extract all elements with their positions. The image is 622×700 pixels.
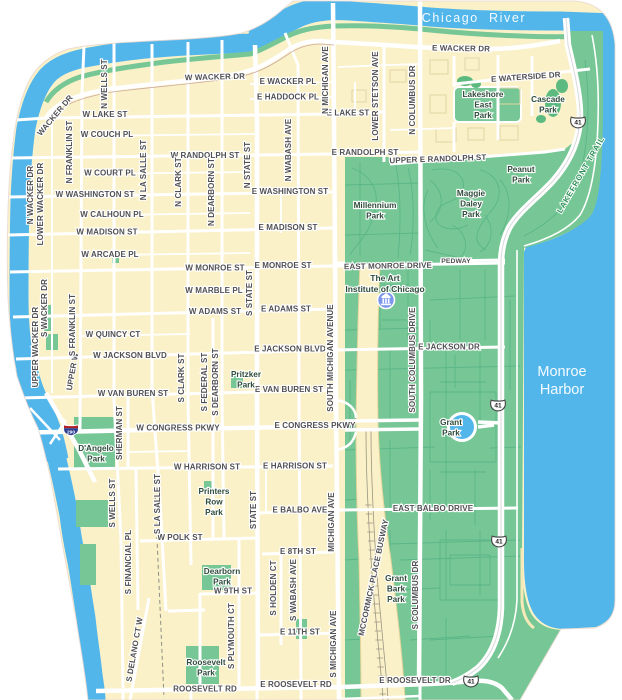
svg-text:MICHIGAN AVE: MICHIGAN AVE [327,492,336,552]
svg-text:E WACKER PL: E WACKER PL [260,77,317,86]
svg-text:Park: Park [205,508,223,517]
svg-text:W COURT PL: W COURT PL [84,169,136,178]
svg-text:E ADAMS ST: E ADAMS ST [261,305,311,314]
svg-text:S STATE ST: S STATE ST [245,270,254,316]
svg-text:41: 41 [495,538,503,545]
svg-text:W ARCADE PL: W ARCADE PL [81,250,138,259]
svg-text:S FEDERAL ST: S FEDERAL ST [200,353,209,412]
svg-text:East: East [474,101,492,110]
svg-text:W LAKE ST: W LAKE ST [83,110,128,119]
svg-text:Park: Park [87,455,105,464]
svg-text:EAST MONROE DRIVE: EAST MONROE DRIVE [344,261,433,272]
svg-text:W 9TH ST: W 9TH ST [214,587,252,596]
svg-text:W VAN BUREN ST: W VAN BUREN ST [98,389,169,398]
svg-text:N FRANKLIN ST: N FRANKLIN ST [65,121,74,184]
svg-text:Park: Park [462,210,480,219]
svg-text:Cascade: Cascade [531,95,565,104]
svg-text:The Art: The Art [370,273,400,283]
svg-text:Institute of Chicago: Institute of Chicago [345,284,424,294]
svg-text:S MICHIGAN AVE: S MICHIGAN AVE [329,610,338,678]
svg-text:Park: Park [512,176,530,185]
svg-text:S FRANKLIN ST: S FRANKLIN ST [68,294,77,356]
svg-text:290: 290 [67,430,75,436]
svg-text:N WELLS ST: N WELLS ST [100,59,109,108]
svg-text:S COLUMBUS DR: S COLUMBUS DR [411,560,420,629]
svg-text:E 11TH ST: E 11TH ST [280,628,320,637]
svg-text:LOWER STETSON AVE: LOWER STETSON AVE [371,51,380,141]
svg-text:W WACKER DR: W WACKER DR [185,72,246,83]
svg-text:ROOSEVELT RD: ROOSEVELT RD [173,685,237,694]
svg-text:Park: Park [197,669,215,678]
svg-text:N CLARK ST: N CLARK ST [174,157,183,206]
svg-text:Park: Park [539,106,557,115]
svg-text:D'Angelo: D'Angelo [78,444,114,453]
svg-text:N COLUMBUS DR: N COLUMBUS DR [408,65,417,134]
svg-text:W WASHINGTON ST: W WASHINGTON ST [56,190,135,199]
svg-text:N DEARBORN ST: N DEARBORN ST [207,158,216,226]
svg-text:E LAKE ST: E LAKE ST [327,109,370,118]
svg-text:N WABASH AVE: N WABASH AVE [284,118,293,181]
svg-text:LOWER WACKER DR: LOWER WACKER DR [36,162,45,245]
svg-text:E HARRISON ST: E HARRISON ST [263,462,327,471]
svg-text:E JACKSON BLVD: E JACKSON BLVD [254,345,326,354]
svg-text:E BALBO AVE: E BALBO AVE [273,506,328,515]
svg-text:E VAN BUREN ST: E VAN BUREN ST [255,385,323,394]
svg-text:W CALHOUN PL: W CALHOUN PL [80,210,143,219]
svg-text:Park: Park [474,111,492,120]
svg-text:UPPER WACKER DR: UPPER WACKER DR [31,307,40,388]
svg-text:SOUTH MICHIGAN AVENUE: SOUTH MICHIGAN AVENUE [326,304,335,412]
svg-text:41: 41 [574,119,582,126]
svg-text:Maggie: Maggie [457,189,486,198]
svg-text:S HOLDEN CT: S HOLDEN CT [269,560,278,615]
svg-text:N STATE ST: N STATE ST [243,142,252,188]
svg-text:41: 41 [467,678,475,685]
svg-text:N WACKER DR: N WACKER DR [26,166,35,225]
svg-text:W CONGRESS PKWY: W CONGRESS PKWY [136,424,220,433]
svg-text:Park: Park [237,381,255,390]
svg-text:Bark: Bark [387,585,406,594]
svg-text:E MADISON ST: E MADISON ST [259,223,318,232]
svg-text:E CONGRESS PKWY: E CONGRESS PKWY [274,421,356,430]
svg-text:N MICHIGAN AVE: N MICHIGAN AVE [321,46,330,114]
svg-text:Grant: Grant [385,574,407,583]
svg-text:W QUINCY CT: W QUINCY CT [86,330,141,339]
svg-text:W POLK ST: W POLK ST [157,533,202,542]
svg-text:Daley: Daley [460,200,482,209]
svg-text:Roosevelt: Roosevelt [186,658,225,667]
svg-text:STATE ST: STATE ST [249,491,258,529]
svg-text:S DEARBORN ST: S DEARBORN ST [211,348,220,416]
svg-text:Park: Park [387,595,405,604]
svg-text:Dearborn: Dearborn [204,567,240,576]
svg-text:S PLYMOUTH CT: S PLYMOUTH CT [227,603,236,669]
svg-text:S FINANCIAL PL: S FINANCIAL PL [124,530,133,594]
svg-text:Park: Park [213,578,231,587]
svg-text:Millennium: Millennium [354,201,397,210]
svg-text:Peanut: Peanut [507,165,535,174]
svg-text:EAST BALBO DRIVE: EAST BALBO DRIVE [393,504,474,513]
svg-text:E JACKSON DR: E JACKSON DR [418,343,480,352]
svg-text:Printers: Printers [199,487,230,496]
svg-text:Row: Row [205,498,223,507]
svg-text:E 8TH ST: E 8TH ST [280,547,316,556]
svg-text:Lakeshore: Lakeshore [463,90,504,99]
svg-text:E HADDOCK PL: E HADDOCK PL [257,93,319,102]
svg-text:W MADISON ST: W MADISON ST [76,228,137,237]
svg-text:W JACKSON BLVD: W JACKSON BLVD [93,351,167,360]
svg-text:S WACKER DR: S WACKER DR [40,279,49,337]
svg-text:E ROOSEVELT DR: E ROOSEVELT DR [379,676,451,685]
svg-text:Park: Park [366,212,384,221]
svg-text:41: 41 [494,402,502,409]
svg-text:E WASHINGTON ST: E WASHINGTON ST [252,187,328,196]
svg-text:PEDWAY: PEDWAY [441,258,471,265]
svg-text:S LA SALLE ST: S LA SALLE ST [153,474,162,534]
svg-text:N LA SALLE ST: N LA SALLE ST [139,140,148,201]
svg-text:Pritzker: Pritzker [231,370,262,379]
svg-text:SHERMAN ST: SHERMAN ST [115,406,124,460]
svg-text:W ADAMS ST: W ADAMS ST [189,307,241,316]
svg-text:S WELLS ST: S WELLS ST [108,478,117,527]
svg-text:W HARRISON ST: W HARRISON ST [174,463,240,472]
svg-text:W MARBLE PL: W MARBLE PL [185,286,243,295]
svg-text:Harbor: Harbor [540,382,584,398]
svg-text:Monroe: Monroe [537,364,586,380]
svg-text:W COUCH PL: W COUCH PL [81,130,134,139]
svg-text:E WACKER DR: E WACKER DR [432,43,490,53]
svg-text:SOUTH COLUMBUS DRIVE: SOUTH COLUMBUS DRIVE [408,307,417,413]
svg-text:W MONROE ST: W MONROE ST [185,264,244,273]
svg-text:E MONROE ST: E MONROE ST [254,261,311,270]
svg-text:Grant: Grant [440,418,462,427]
svg-text:E ROOSEVELT RD: E ROOSEVELT RD [260,680,332,689]
svg-text:Chicago River: Chicago River [422,11,526,25]
svg-text:Park: Park [442,429,460,438]
svg-text:S CLARK ST: S CLARK ST [177,353,186,402]
svg-text:S WABASH AVE: S WABASH AVE [289,558,298,621]
